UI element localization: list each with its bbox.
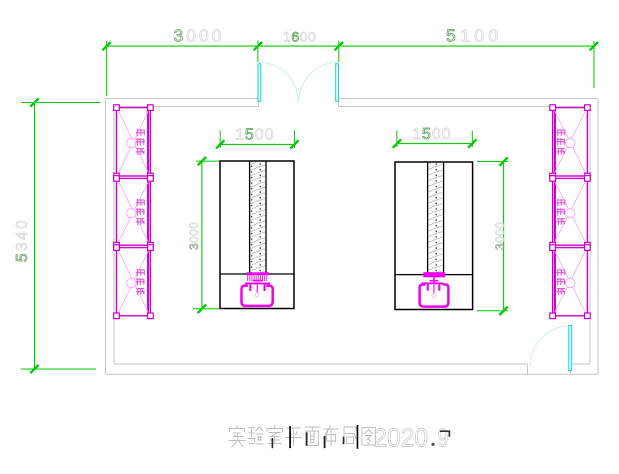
svg-text:5100: 5100 (446, 26, 503, 46)
svg-text:5340: 5340 (14, 218, 31, 262)
svg-text:3000: 3000 (493, 222, 507, 250)
svg-text:1500: 1500 (412, 126, 452, 143)
svg-text:3000: 3000 (187, 222, 201, 250)
svg-text:2020: 2020 (374, 423, 429, 453)
svg-text:1600: 1600 (283, 29, 317, 45)
svg-text:1500: 1500 (235, 127, 275, 144)
svg-text:9: 9 (438, 423, 449, 453)
svg-text:3000: 3000 (174, 26, 225, 46)
